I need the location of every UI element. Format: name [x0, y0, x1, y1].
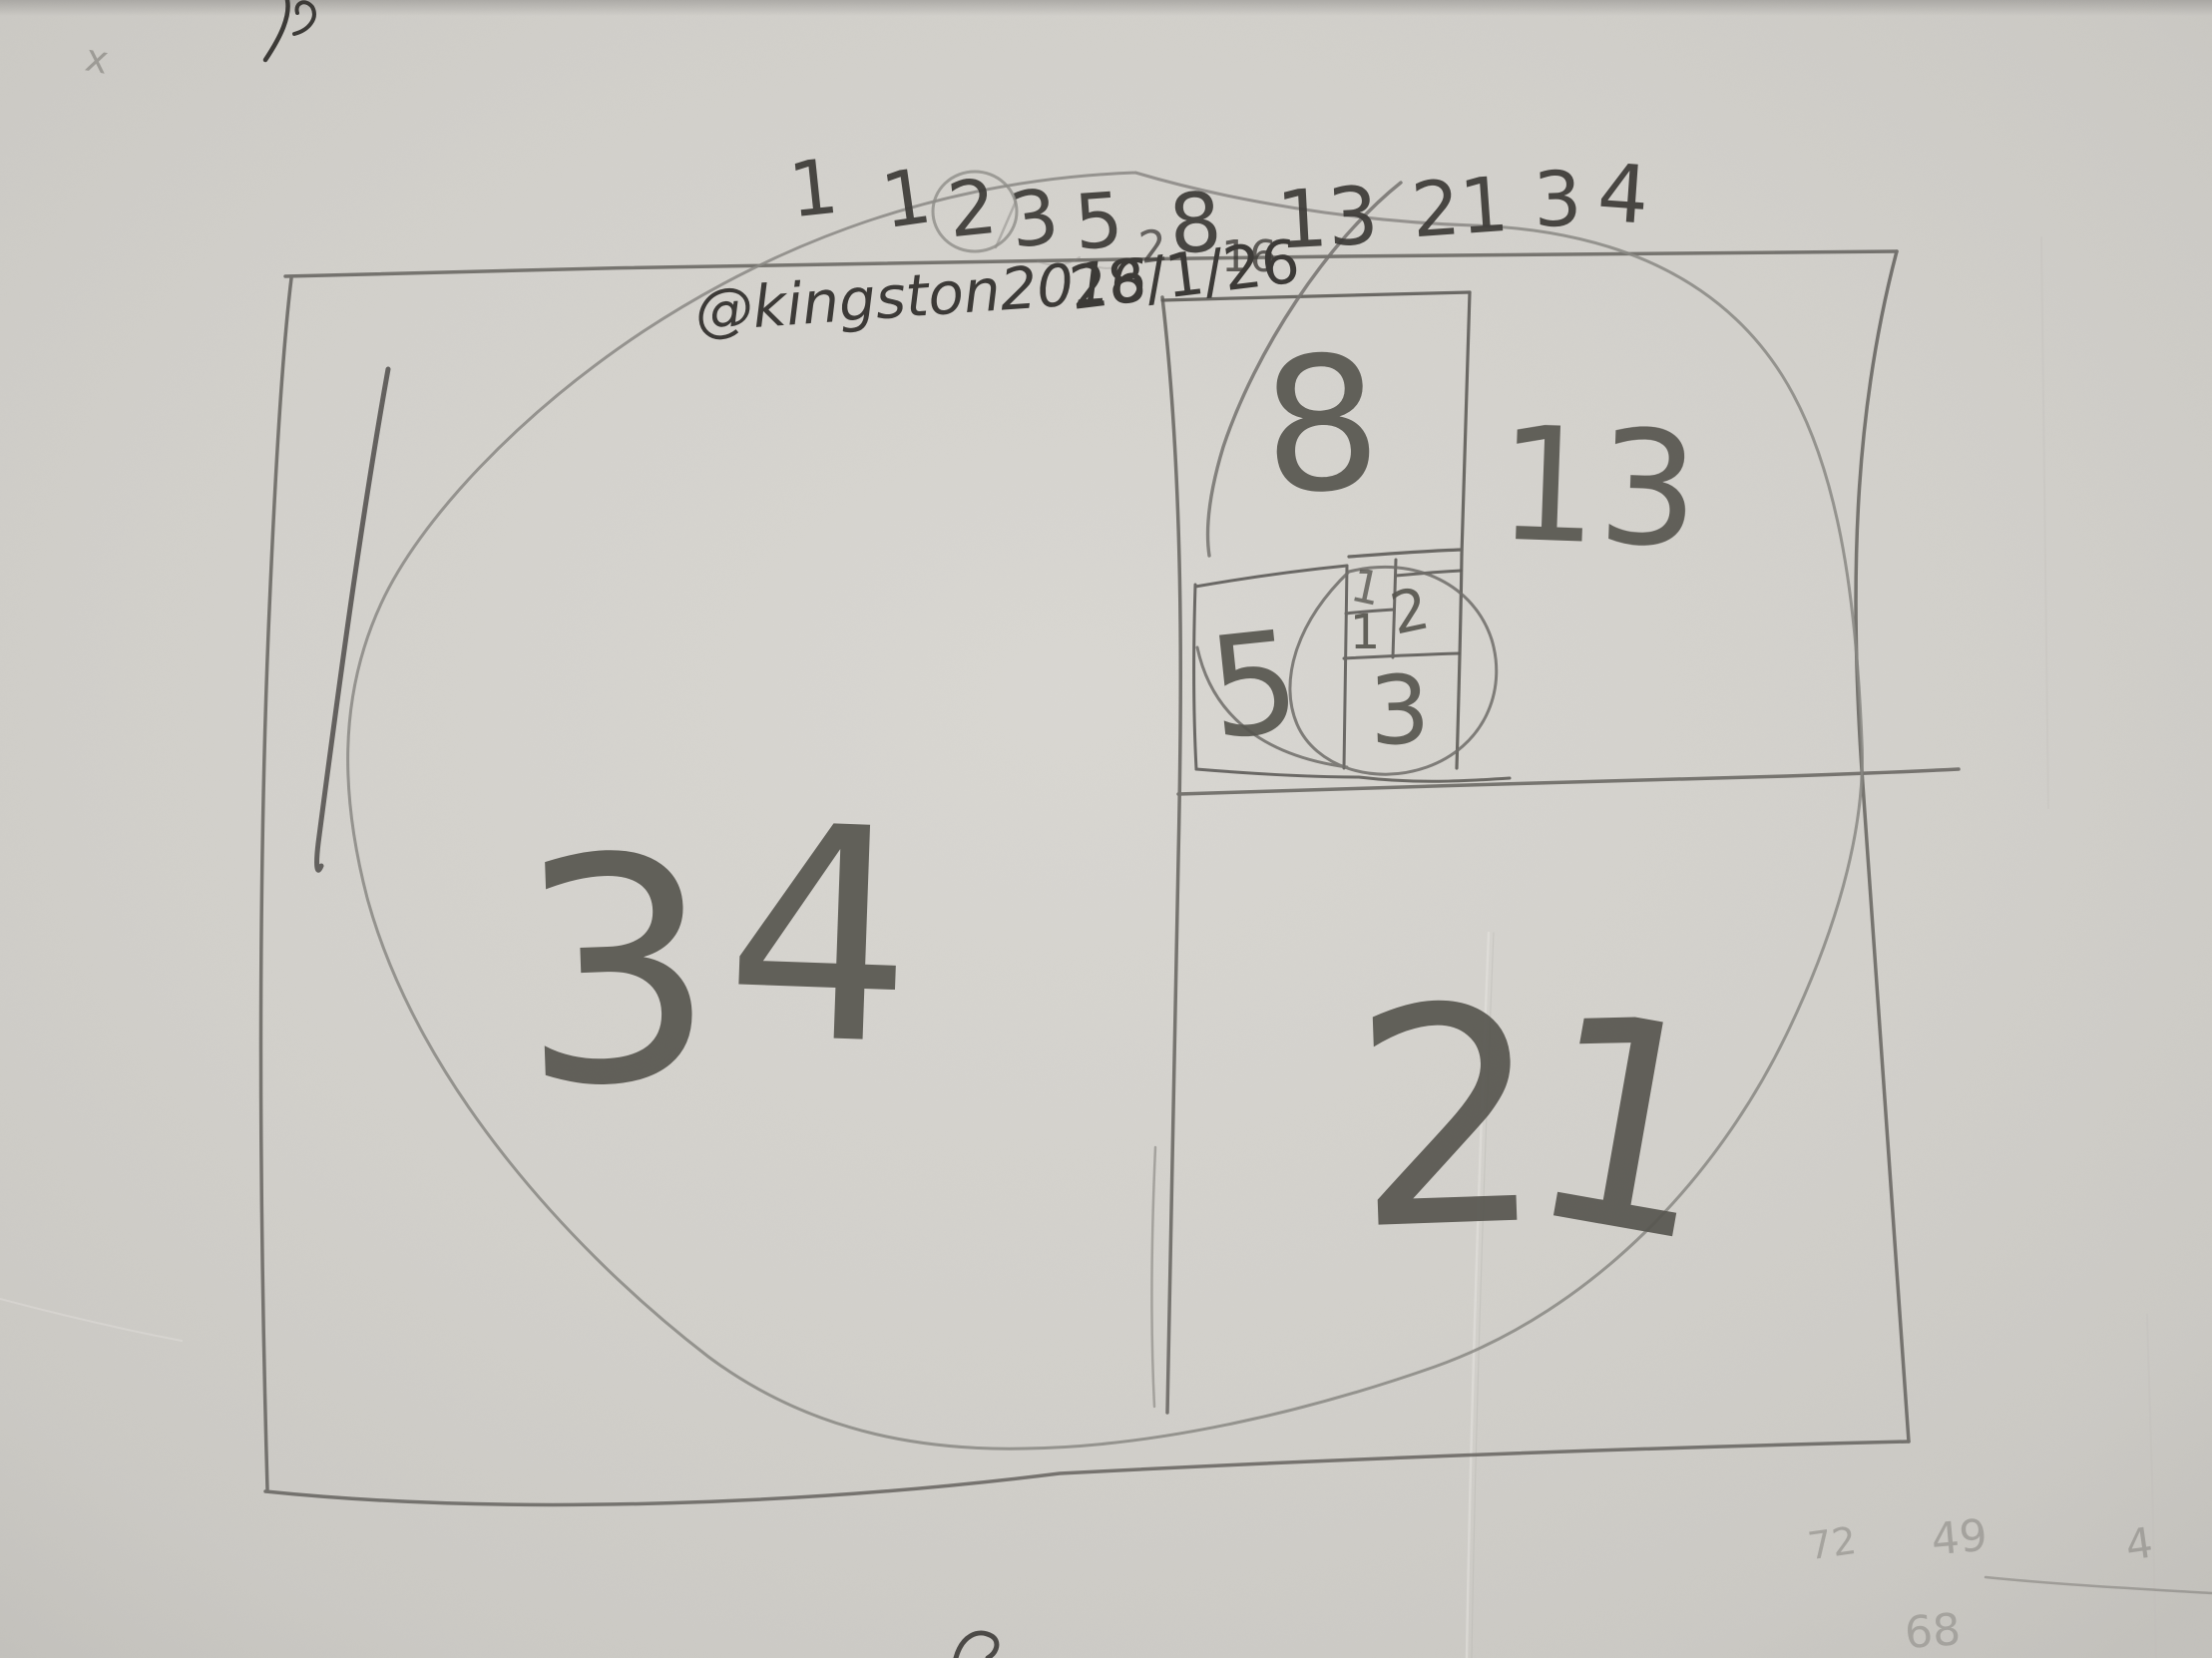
square-13-label: 13 — [1495, 393, 1701, 584]
square-5-label: 5 — [1201, 601, 1307, 771]
bottom-right-note-72: 72 — [1805, 1518, 1859, 1568]
square-3-label: 3 — [1368, 655, 1432, 767]
bottom-right-note-49: 49 — [1930, 1510, 1990, 1566]
square-34-label-4: 4 — [720, 761, 920, 1110]
paper-top-edge-shadow — [0, 0, 2212, 16]
sequence-number-34-d2: 4 — [1594, 146, 1651, 241]
sequence-number-21: 21 — [1409, 160, 1512, 255]
square-8-label: 8 — [1257, 314, 1386, 536]
sequence-number-1a: 1 — [785, 142, 842, 235]
sequence-number-34-d1: 3 — [1532, 154, 1582, 244]
square-34-label-3: 3 — [512, 790, 721, 1157]
photo-of-paper-sketch: 1 1 2 3 5 2 8 16 13 21 3 4 @kingston2016… — [0, 0, 2212, 1658]
bottom-right-note-68: 68 — [1903, 1604, 1962, 1658]
unit-square-bottom-label: 1 — [1350, 605, 1381, 660]
sketch-canvas: 1 1 2 3 5 2 8 16 13 21 3 4 @kingston2016… — [0, 0, 2212, 1658]
